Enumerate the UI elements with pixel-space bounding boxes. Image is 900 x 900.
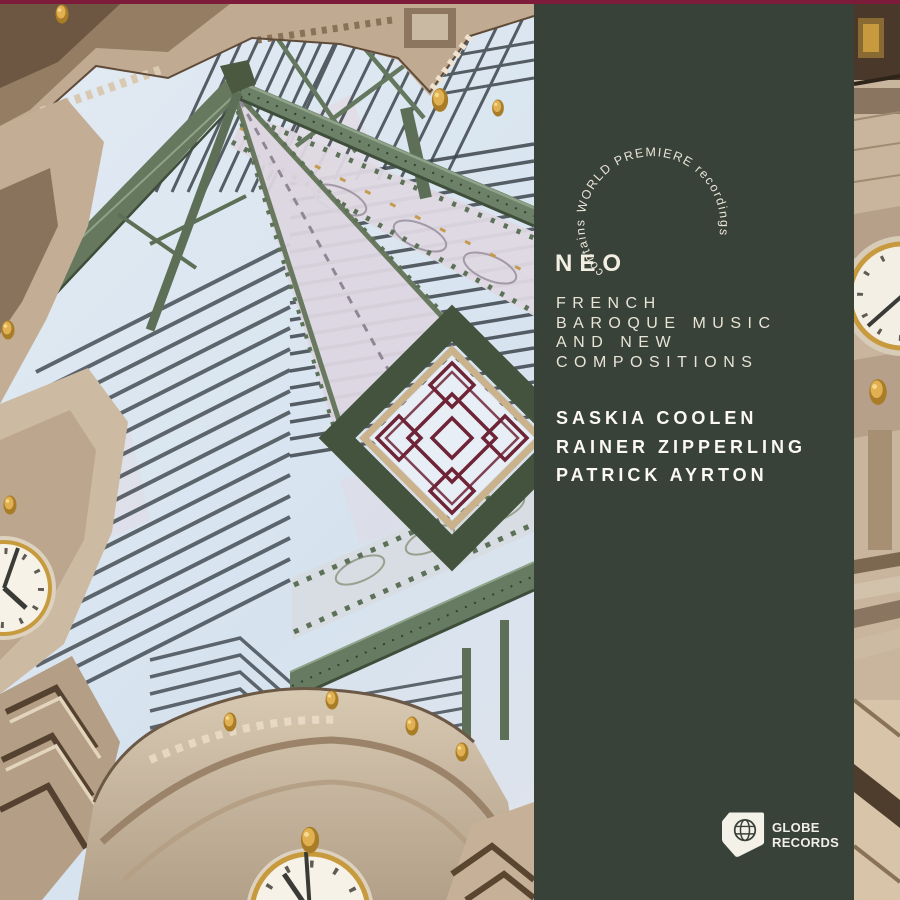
subtitle-line: BAROQUE MUSIC bbox=[556, 314, 777, 334]
label-line: RECORDS bbox=[772, 836, 839, 851]
label-name: GLOBE RECORDS bbox=[772, 821, 839, 850]
artist-name: SASKIA COOLEN bbox=[556, 404, 806, 433]
subtitle-line: FRENCH bbox=[556, 294, 777, 314]
album-title: NEO bbox=[555, 250, 628, 278]
label-line: GLOBE bbox=[772, 821, 839, 836]
artist-name: PATRICK AYRTON bbox=[556, 461, 806, 490]
album-cover: contains WORLD PREMIERE recordings NEO F… bbox=[0, 0, 900, 900]
globe-icon bbox=[722, 812, 767, 862]
green-panel: contains WORLD PREMIERE recordings NEO F… bbox=[534, 4, 854, 900]
subtitle-line: AND NEW bbox=[556, 333, 777, 353]
album-subtitle: FRENCH BAROQUE MUSIC AND NEW COMPOSITION… bbox=[556, 294, 777, 372]
artist-list: SASKIA COOLEN RAINER ZIPPERLING PATRICK … bbox=[556, 404, 806, 490]
artist-name: RAINER ZIPPERLING bbox=[556, 433, 806, 462]
globe-records-logo: GLOBE RECORDS bbox=[722, 812, 854, 872]
subtitle-line: COMPOSITIONS bbox=[556, 353, 777, 373]
